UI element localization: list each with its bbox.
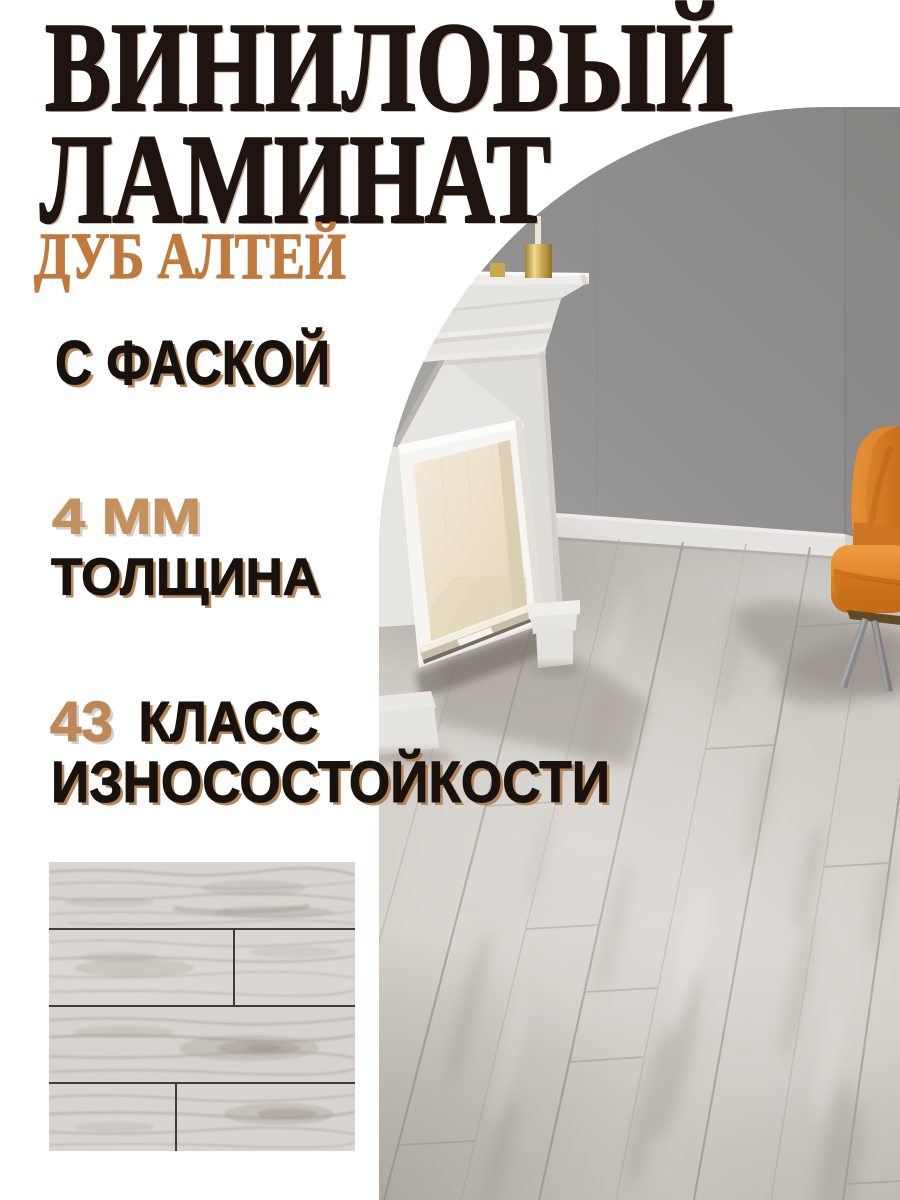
svg-text:4 ММ: 4 ММ xyxy=(52,489,201,545)
svg-text:43: 43 xyxy=(50,690,113,754)
svg-text:ТОЛЩИНА: ТОЛЩИНА xyxy=(51,549,320,607)
svg-text:С ФАСКОЙ: С ФАСКОЙ xyxy=(55,328,330,398)
svg-text:ДУБ АЛТЕЙ: ДУБ АЛТЕЙ xyxy=(34,220,346,293)
svg-text:КЛАСС: КЛАСС xyxy=(139,690,319,754)
svg-text:ИЗНОСОСТОЙКОСТИ: ИЗНОСОСТОЙКОСТИ xyxy=(51,750,610,815)
